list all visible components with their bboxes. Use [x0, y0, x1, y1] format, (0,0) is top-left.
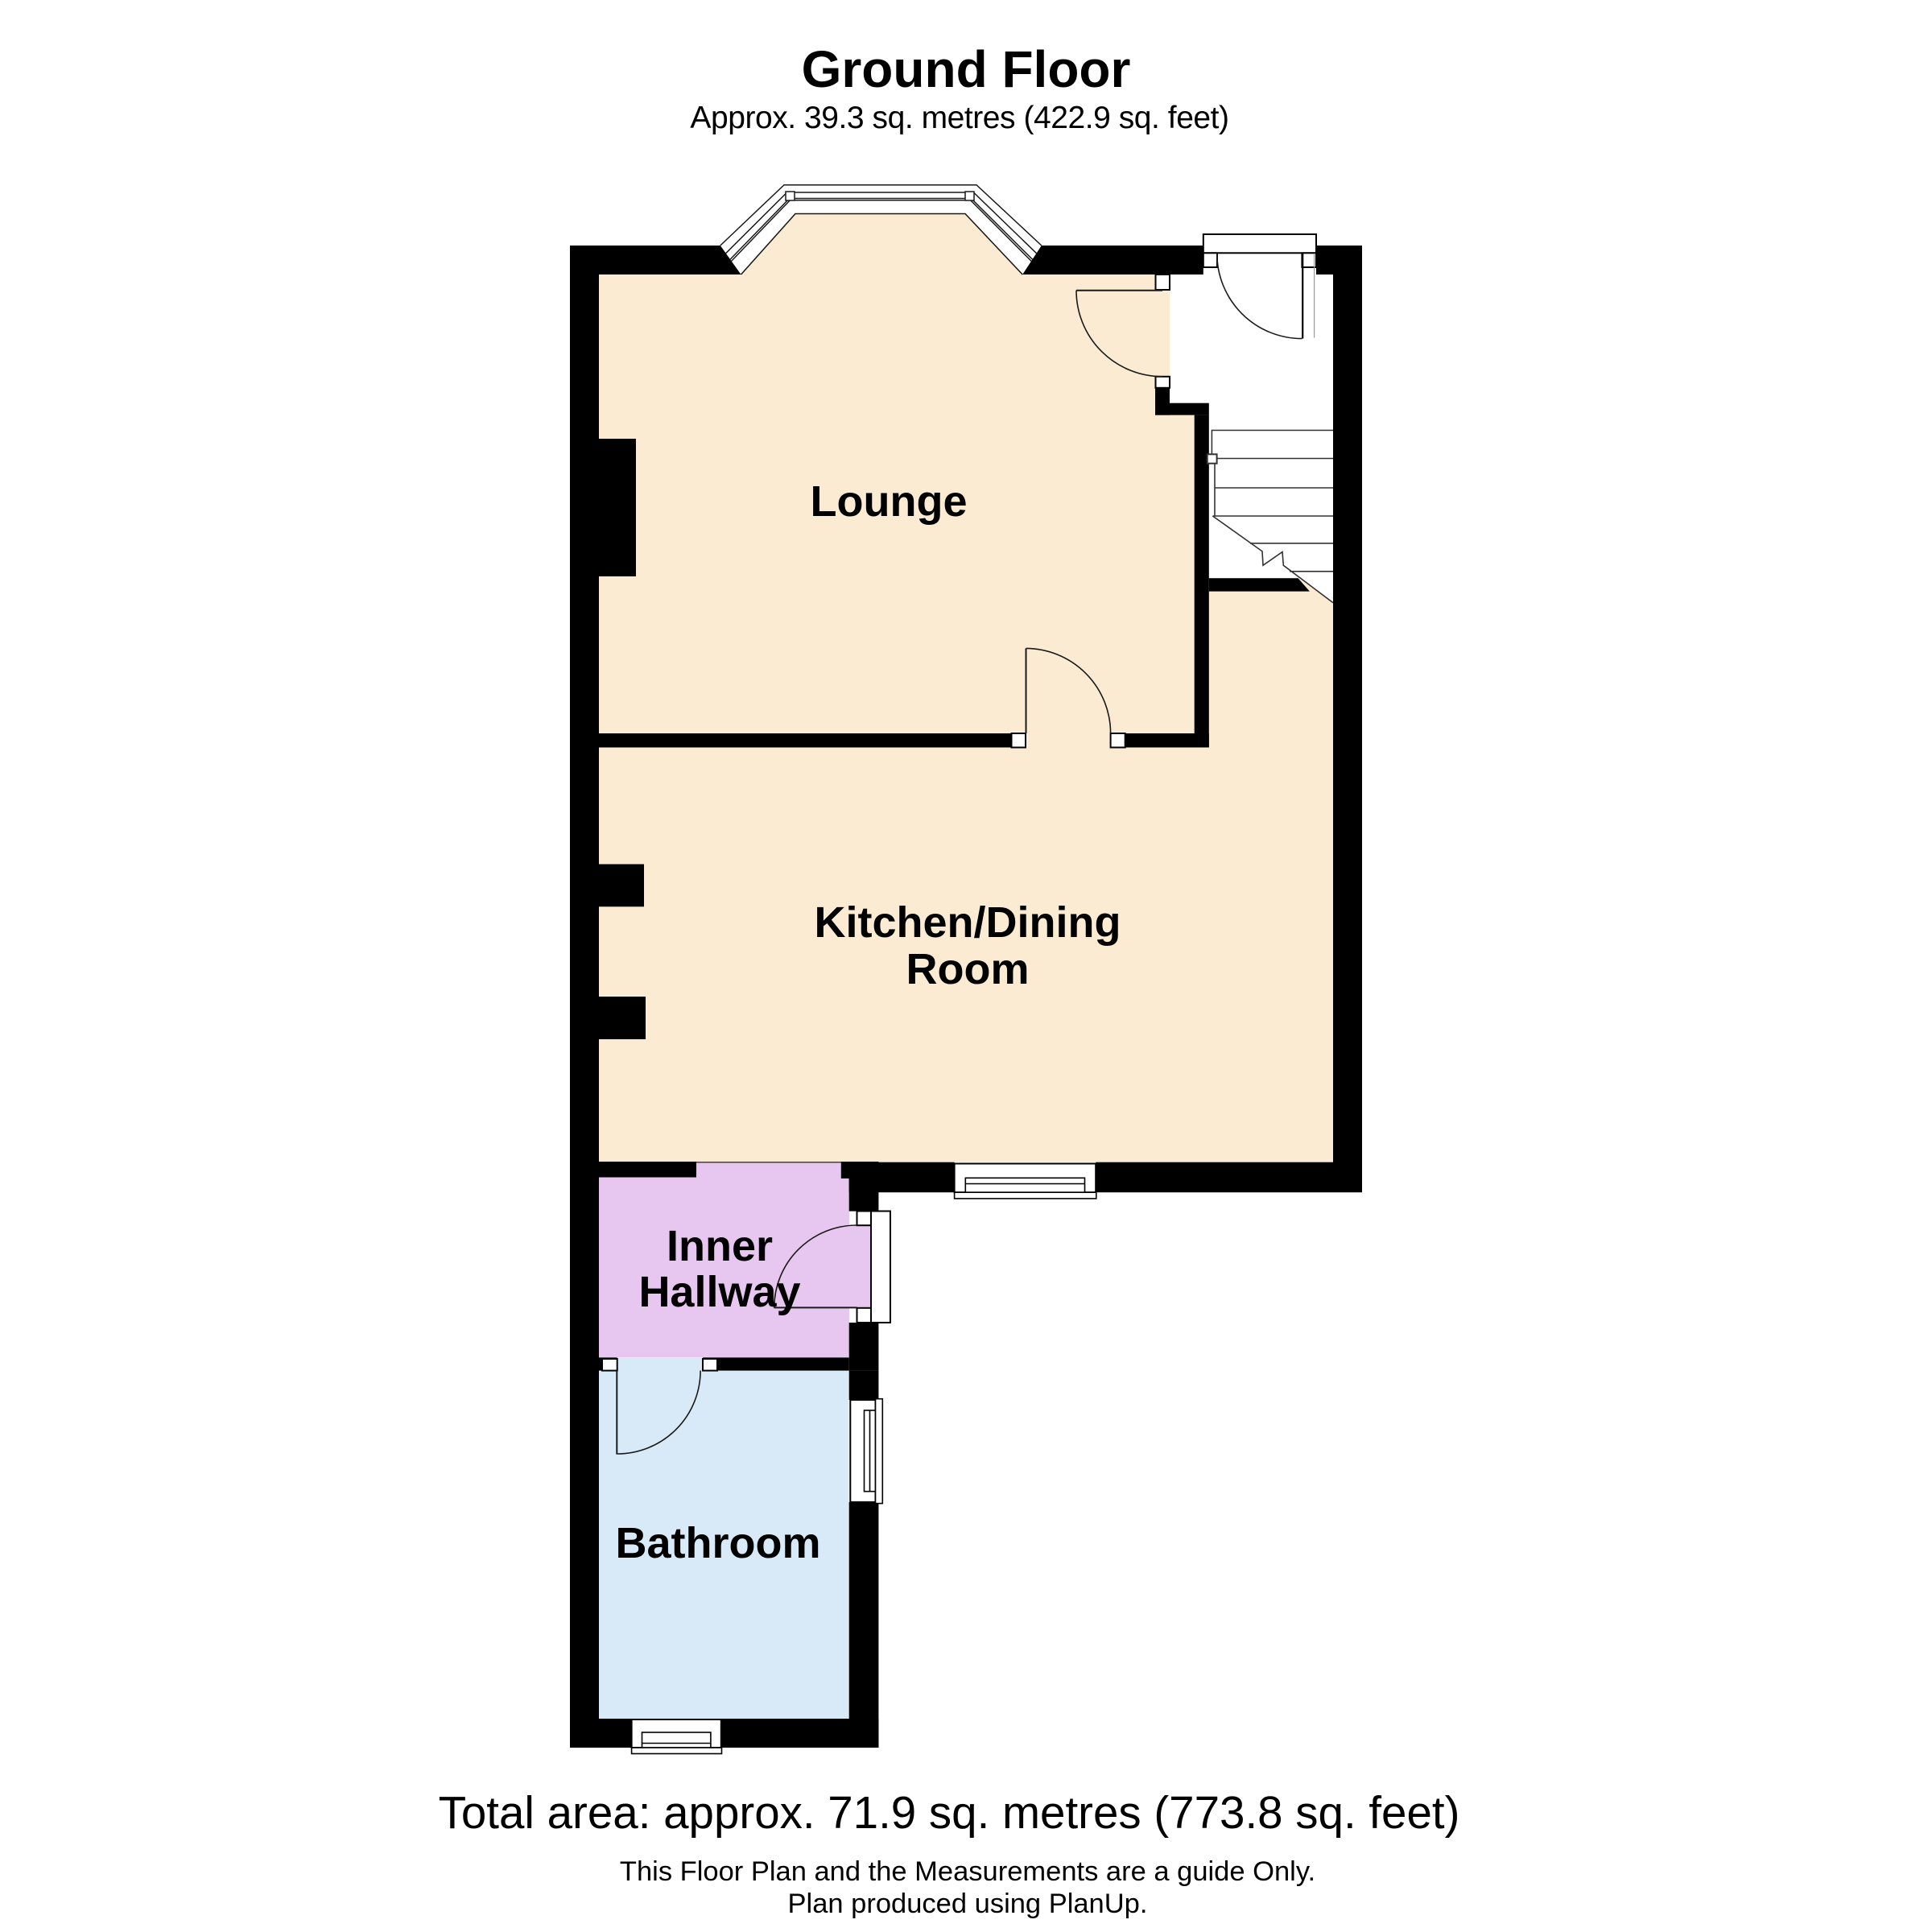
svg-text:Bathroom: Bathroom: [616, 1519, 821, 1567]
svg-text:This Floor Plan and the Measur: This Floor Plan and the Measurements are…: [620, 1856, 1315, 1887]
svg-text:Kitchen/Dining: Kitchen/Dining: [815, 898, 1121, 947]
svg-text:Ground Floor: Ground Floor: [802, 40, 1131, 98]
svg-text:Total area: approx. 71.9 sq. m: Total area: approx. 71.9 sq. metres (773…: [439, 1787, 1460, 1838]
svg-text:Plan produced using PlanUp.: Plan produced using PlanUp.: [788, 1889, 1148, 1919]
svg-text:Approx. 39.3 sq. metres (422.9: Approx. 39.3 sq. metres (422.9 sq. feet): [690, 101, 1228, 135]
svg-text:Hallway: Hallway: [638, 1268, 800, 1316]
svg-text:Room: Room: [906, 945, 1030, 993]
svg-text:Inner: Inner: [667, 1222, 773, 1270]
svg-text:Lounge: Lounge: [811, 477, 968, 526]
